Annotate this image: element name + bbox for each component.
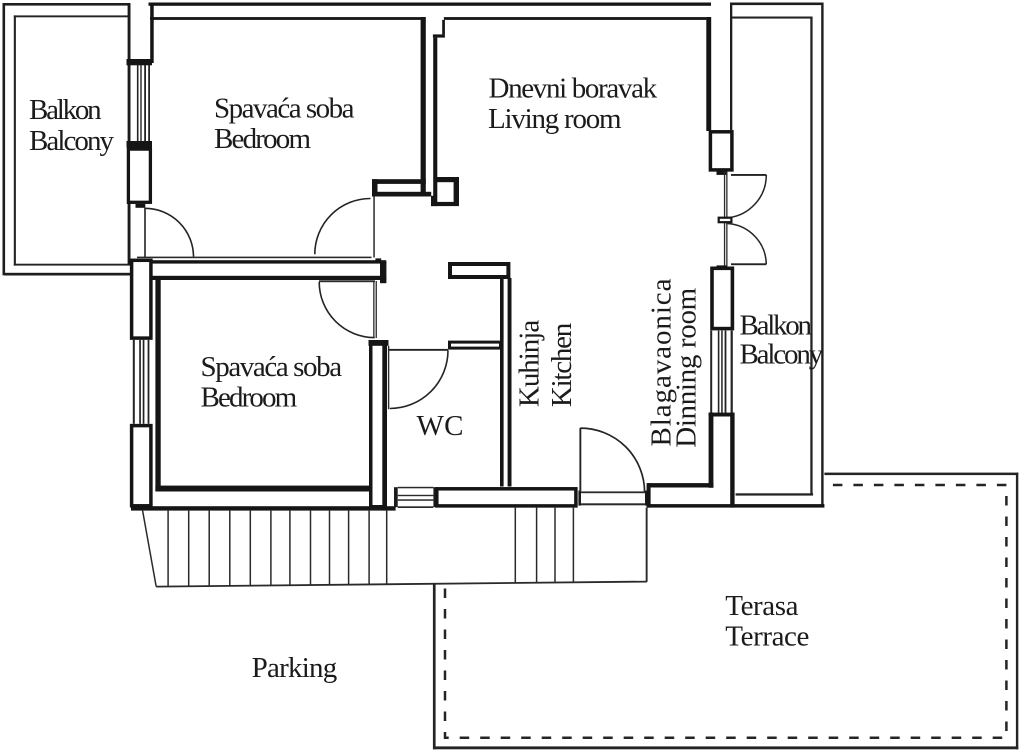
svg-text:Bedroom: Bedroom	[214, 123, 311, 155]
svg-text:Terasa: Terasa	[725, 590, 798, 622]
svg-text:Terrace: Terrace	[725, 621, 809, 653]
svg-text:Spavaća soba: Spavaća soba	[201, 351, 343, 383]
svg-text:Dnevni boravak: Dnevni boravak	[489, 73, 658, 105]
svg-text:Dinning room: Dinning room	[671, 287, 703, 447]
svg-text:Kitchen: Kitchen	[546, 322, 578, 407]
svg-text:Living room: Living room	[488, 103, 622, 135]
svg-text:WC: WC	[417, 410, 464, 442]
svg-text:Balkon: Balkon	[740, 310, 813, 342]
svg-text:Bedroom: Bedroom	[201, 381, 298, 413]
svg-text:Balcony: Balcony	[740, 339, 824, 371]
svg-text:Balkon: Balkon	[29, 94, 102, 126]
svg-text:Spavaća soba: Spavaća soba	[214, 93, 355, 125]
svg-text:Parking: Parking	[252, 652, 338, 684]
svg-text:Kuhinja: Kuhinja	[514, 320, 546, 407]
svg-text:Balcony: Balcony	[29, 125, 115, 157]
